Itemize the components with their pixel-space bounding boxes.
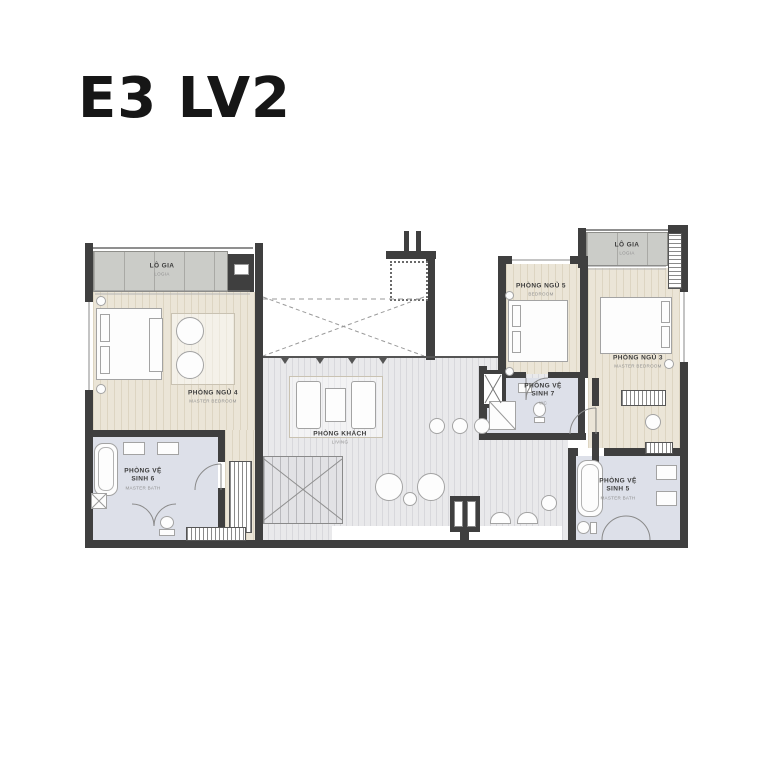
cabinet-door	[467, 501, 476, 527]
cabinet-stem	[460, 532, 469, 541]
toilet	[533, 402, 546, 417]
left-wall-window	[85, 302, 93, 390]
wall-bed5-left	[498, 256, 506, 378]
lounge-chair	[375, 473, 403, 501]
side-table	[403, 492, 417, 506]
wall-loggia-right-stub	[578, 228, 586, 268]
loggia-right-column	[668, 233, 682, 289]
wall-bed3-left-b	[592, 432, 599, 462]
tv-console-bedroom-3	[621, 390, 666, 406]
cabinet-door	[454, 501, 463, 527]
ac-unit	[234, 264, 249, 275]
stool	[429, 418, 445, 434]
toilet-tank	[159, 529, 175, 536]
loggia-right-floor	[586, 232, 668, 266]
bathtub-basin	[98, 447, 114, 491]
toilet-tank	[534, 417, 545, 423]
stool	[452, 418, 468, 434]
wall-prong-b	[416, 231, 421, 253]
nightstand	[96, 296, 106, 306]
wall-wc7-top-b	[548, 372, 580, 378]
wardrobe-bottom-left	[186, 527, 246, 541]
nightstand	[505, 291, 514, 300]
sink	[123, 442, 145, 455]
sink	[656, 465, 677, 480]
wall-bed3-left-a	[592, 378, 599, 406]
wardrobe-bath-5	[645, 442, 673, 454]
armchair	[645, 414, 661, 430]
plan-title: E3 LV2	[78, 66, 291, 131]
wall-bed5-bed3	[580, 256, 588, 378]
pillow	[100, 314, 110, 342]
coffee-table	[325, 388, 346, 422]
sink	[157, 442, 179, 455]
armchair	[176, 317, 204, 345]
toilet-tank	[590, 522, 597, 534]
wall-wc7-bottom	[479, 433, 586, 440]
sink	[518, 383, 532, 393]
floorplan-page: E3 LV2	[0, 0, 768, 768]
wall-bath6-top	[93, 430, 225, 437]
wall-bottom	[85, 540, 688, 548]
toilet	[160, 516, 174, 529]
pillow	[661, 301, 670, 323]
hall-plain-strip	[332, 526, 562, 540]
toilet	[577, 521, 590, 534]
sofa	[351, 381, 376, 429]
bed-runner	[149, 318, 163, 372]
sink	[656, 491, 677, 506]
loggia-left-floor	[93, 251, 228, 292]
wall-wc7-right	[578, 372, 585, 440]
right-wall-window	[680, 292, 688, 362]
wall-bath6-right-a	[218, 430, 225, 462]
wall-bath5-top-a	[568, 448, 578, 456]
wall-prong-a	[404, 231, 409, 253]
dining-chair	[490, 512, 511, 524]
wall-leftblock-right	[255, 243, 263, 548]
washer	[91, 493, 107, 509]
pillow	[661, 326, 670, 348]
shaft-box	[390, 261, 428, 301]
armchair	[176, 351, 204, 379]
stool	[474, 418, 490, 434]
pillow	[512, 331, 521, 353]
pillow	[512, 305, 521, 327]
duct-box	[484, 374, 502, 404]
bed5-window	[512, 256, 570, 264]
wardrobe-corridor	[229, 461, 252, 533]
shower	[489, 401, 516, 430]
pillow	[100, 346, 110, 374]
deco-plant	[541, 495, 557, 511]
lounge-chair	[417, 473, 445, 501]
staircase	[263, 456, 343, 524]
nightstand	[96, 384, 106, 394]
wall-bath5-left	[568, 456, 576, 548]
nightstand	[664, 359, 674, 369]
sofa	[296, 381, 321, 429]
dining-chair	[517, 512, 538, 524]
nightstand	[505, 367, 514, 376]
bedroom-3-floor	[588, 268, 680, 448]
bathtub-basin	[581, 464, 599, 512]
